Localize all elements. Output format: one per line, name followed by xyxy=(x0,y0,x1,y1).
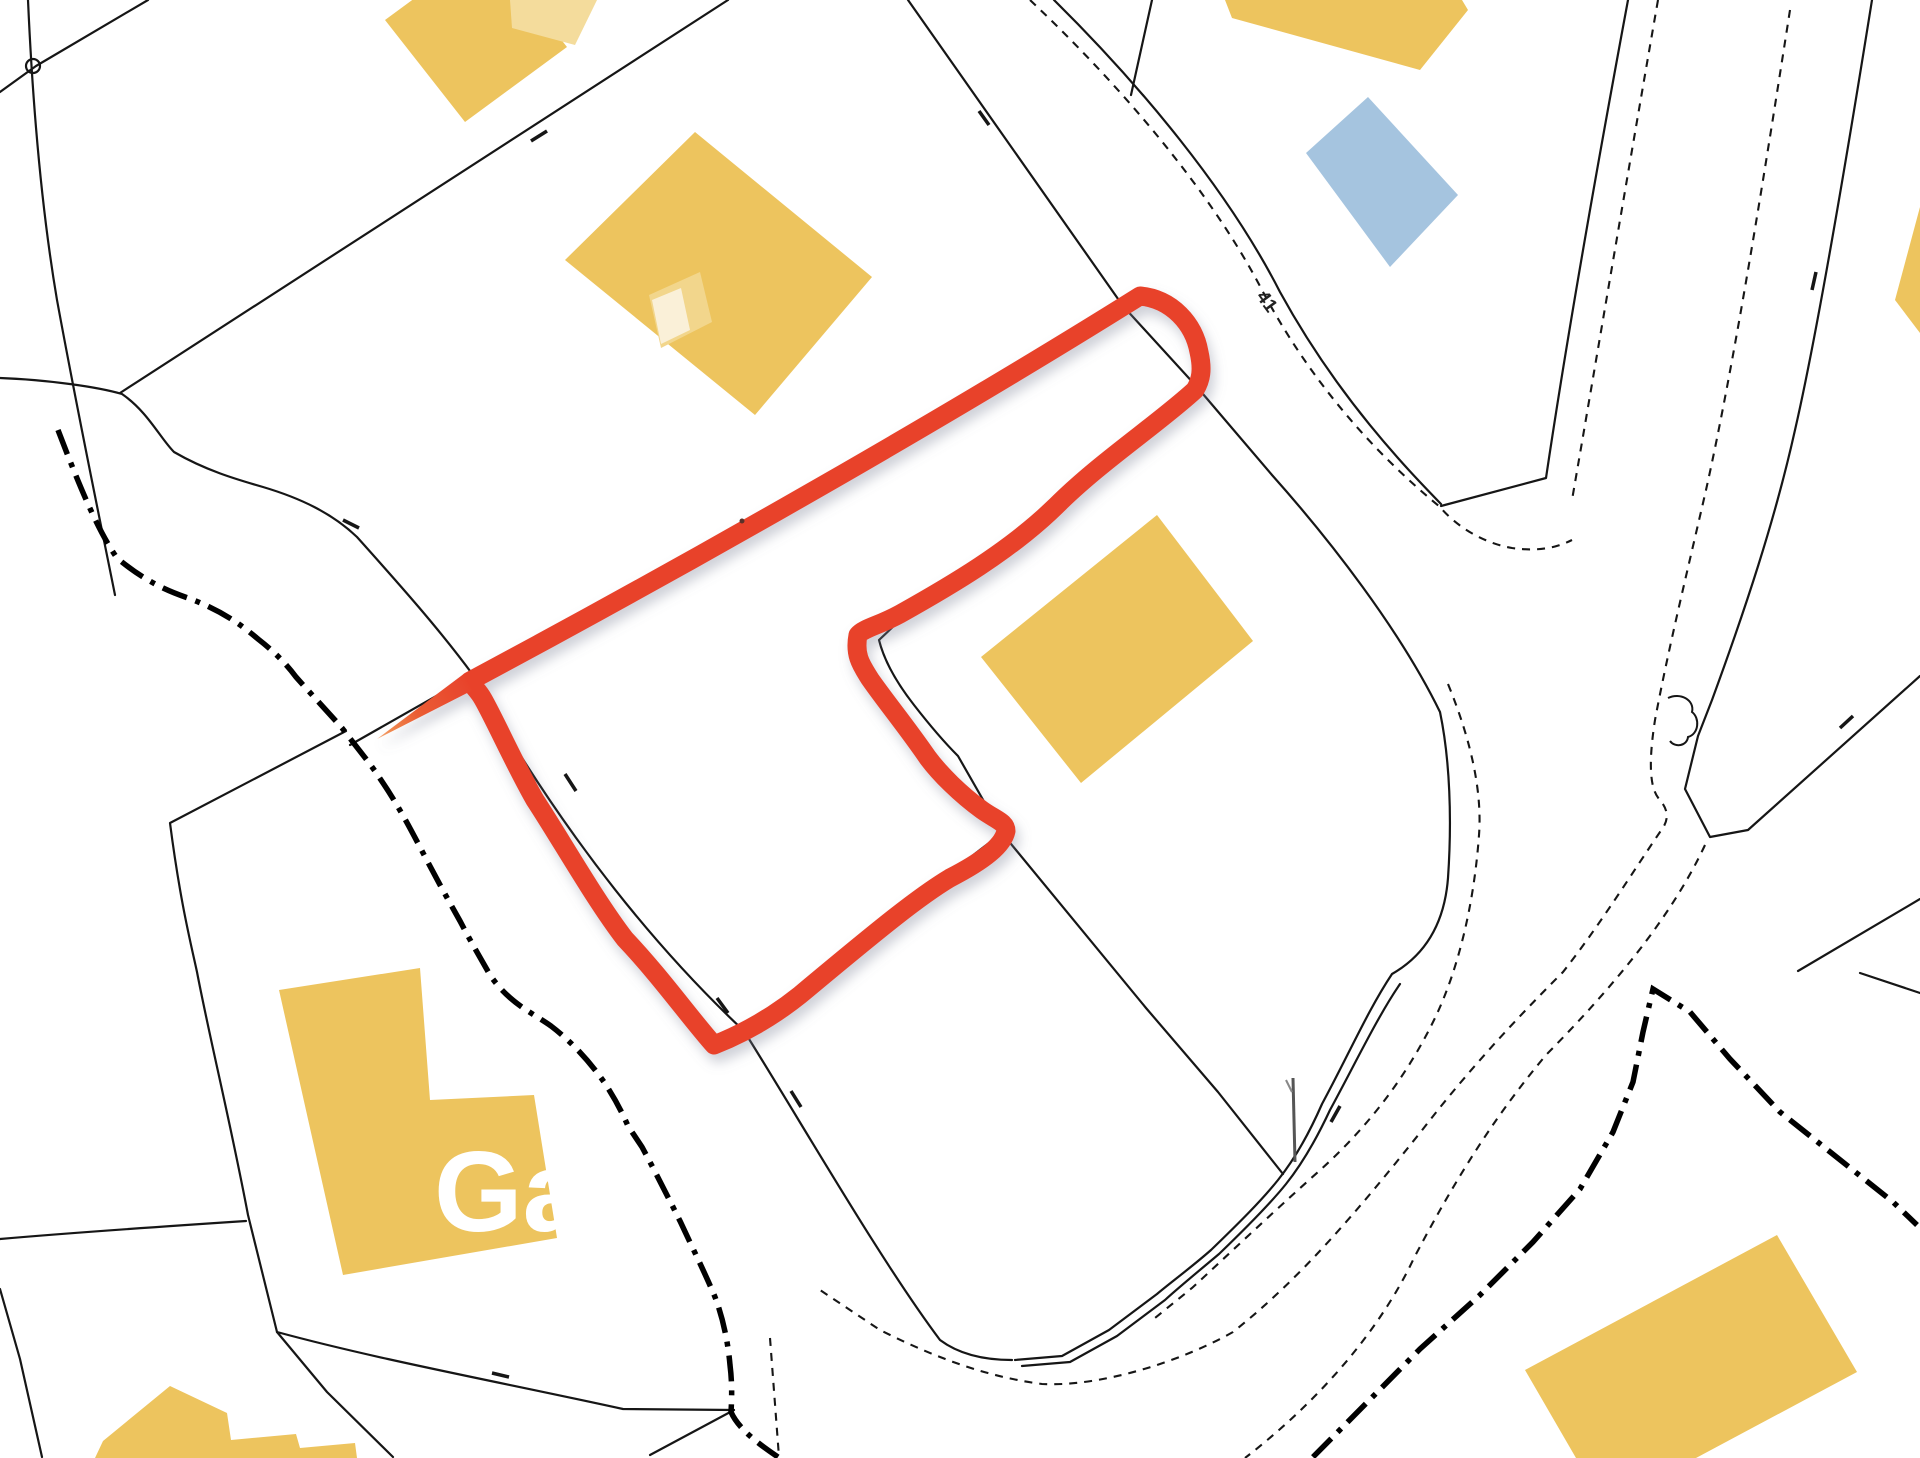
svg-text:Ga: Ga xyxy=(434,1129,588,1256)
